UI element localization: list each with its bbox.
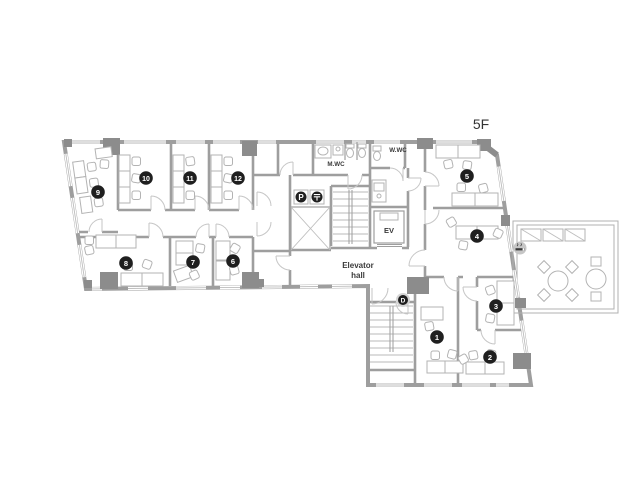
floor-label: 5F xyxy=(473,116,489,132)
room-badge-10: 10 xyxy=(139,171,153,185)
room-badge-4: 4 xyxy=(470,229,484,243)
elevator-label: EV xyxy=(384,226,394,235)
room-badge-3: 3 xyxy=(489,299,503,313)
room-badge-6: 6 xyxy=(226,254,240,268)
room-badge-9: 9 xyxy=(91,185,105,199)
terrace-table-2 xyxy=(586,257,606,301)
room-badge-2: 2 xyxy=(483,350,497,364)
room-10-furniture xyxy=(119,155,141,203)
svg-text:2: 2 xyxy=(488,353,492,362)
svg-text:5: 5 xyxy=(465,172,469,181)
smoking-icon xyxy=(514,242,527,255)
postal-mark-icon xyxy=(310,190,324,204)
svg-text:1: 1 xyxy=(435,333,439,342)
svg-text:11: 11 xyxy=(186,176,194,183)
elevator-hall-label-line2: hall xyxy=(351,271,365,280)
svg-text:8: 8 xyxy=(124,259,128,268)
room-badge-8: 8 xyxy=(119,256,133,270)
kitchenette-fixture xyxy=(372,180,386,202)
room-badge-11: 11 xyxy=(183,171,197,185)
svg-text:6: 6 xyxy=(231,257,235,266)
floor-plan-page: P D M.WC W.WC EV Elevator hall 5F 1 2 3 … xyxy=(0,0,640,480)
svg-text:3: 3 xyxy=(494,302,498,311)
terrace xyxy=(513,221,618,313)
womens-wc-fixtures xyxy=(373,146,381,161)
womens-wc-label: W.WC xyxy=(389,147,407,154)
elevator-hall-label-line1: Elevator xyxy=(342,261,374,270)
floor-plan: P D M.WC W.WC EV Elevator hall 5F 1 2 3 … xyxy=(0,0,640,480)
svg-text:7: 7 xyxy=(191,258,195,267)
dust-chute-badge: D xyxy=(396,293,410,307)
svg-text:9: 9 xyxy=(96,188,100,197)
room-badge-5: 5 xyxy=(460,169,474,183)
terrace-planters xyxy=(521,229,585,241)
room-badge-1: 1 xyxy=(430,330,444,344)
mens-wc-label: M.WC xyxy=(327,161,345,168)
room-badge-7: 7 xyxy=(186,255,200,269)
svg-text:P: P xyxy=(298,193,304,202)
terrace-table-1 xyxy=(538,261,579,302)
svg-text:10: 10 xyxy=(142,176,150,183)
svg-text:D: D xyxy=(401,298,406,305)
svg-text:12: 12 xyxy=(234,176,242,183)
phone-sign: P xyxy=(294,190,308,204)
room-12-furniture xyxy=(211,155,233,203)
room-badge-12: 12 xyxy=(231,171,245,185)
